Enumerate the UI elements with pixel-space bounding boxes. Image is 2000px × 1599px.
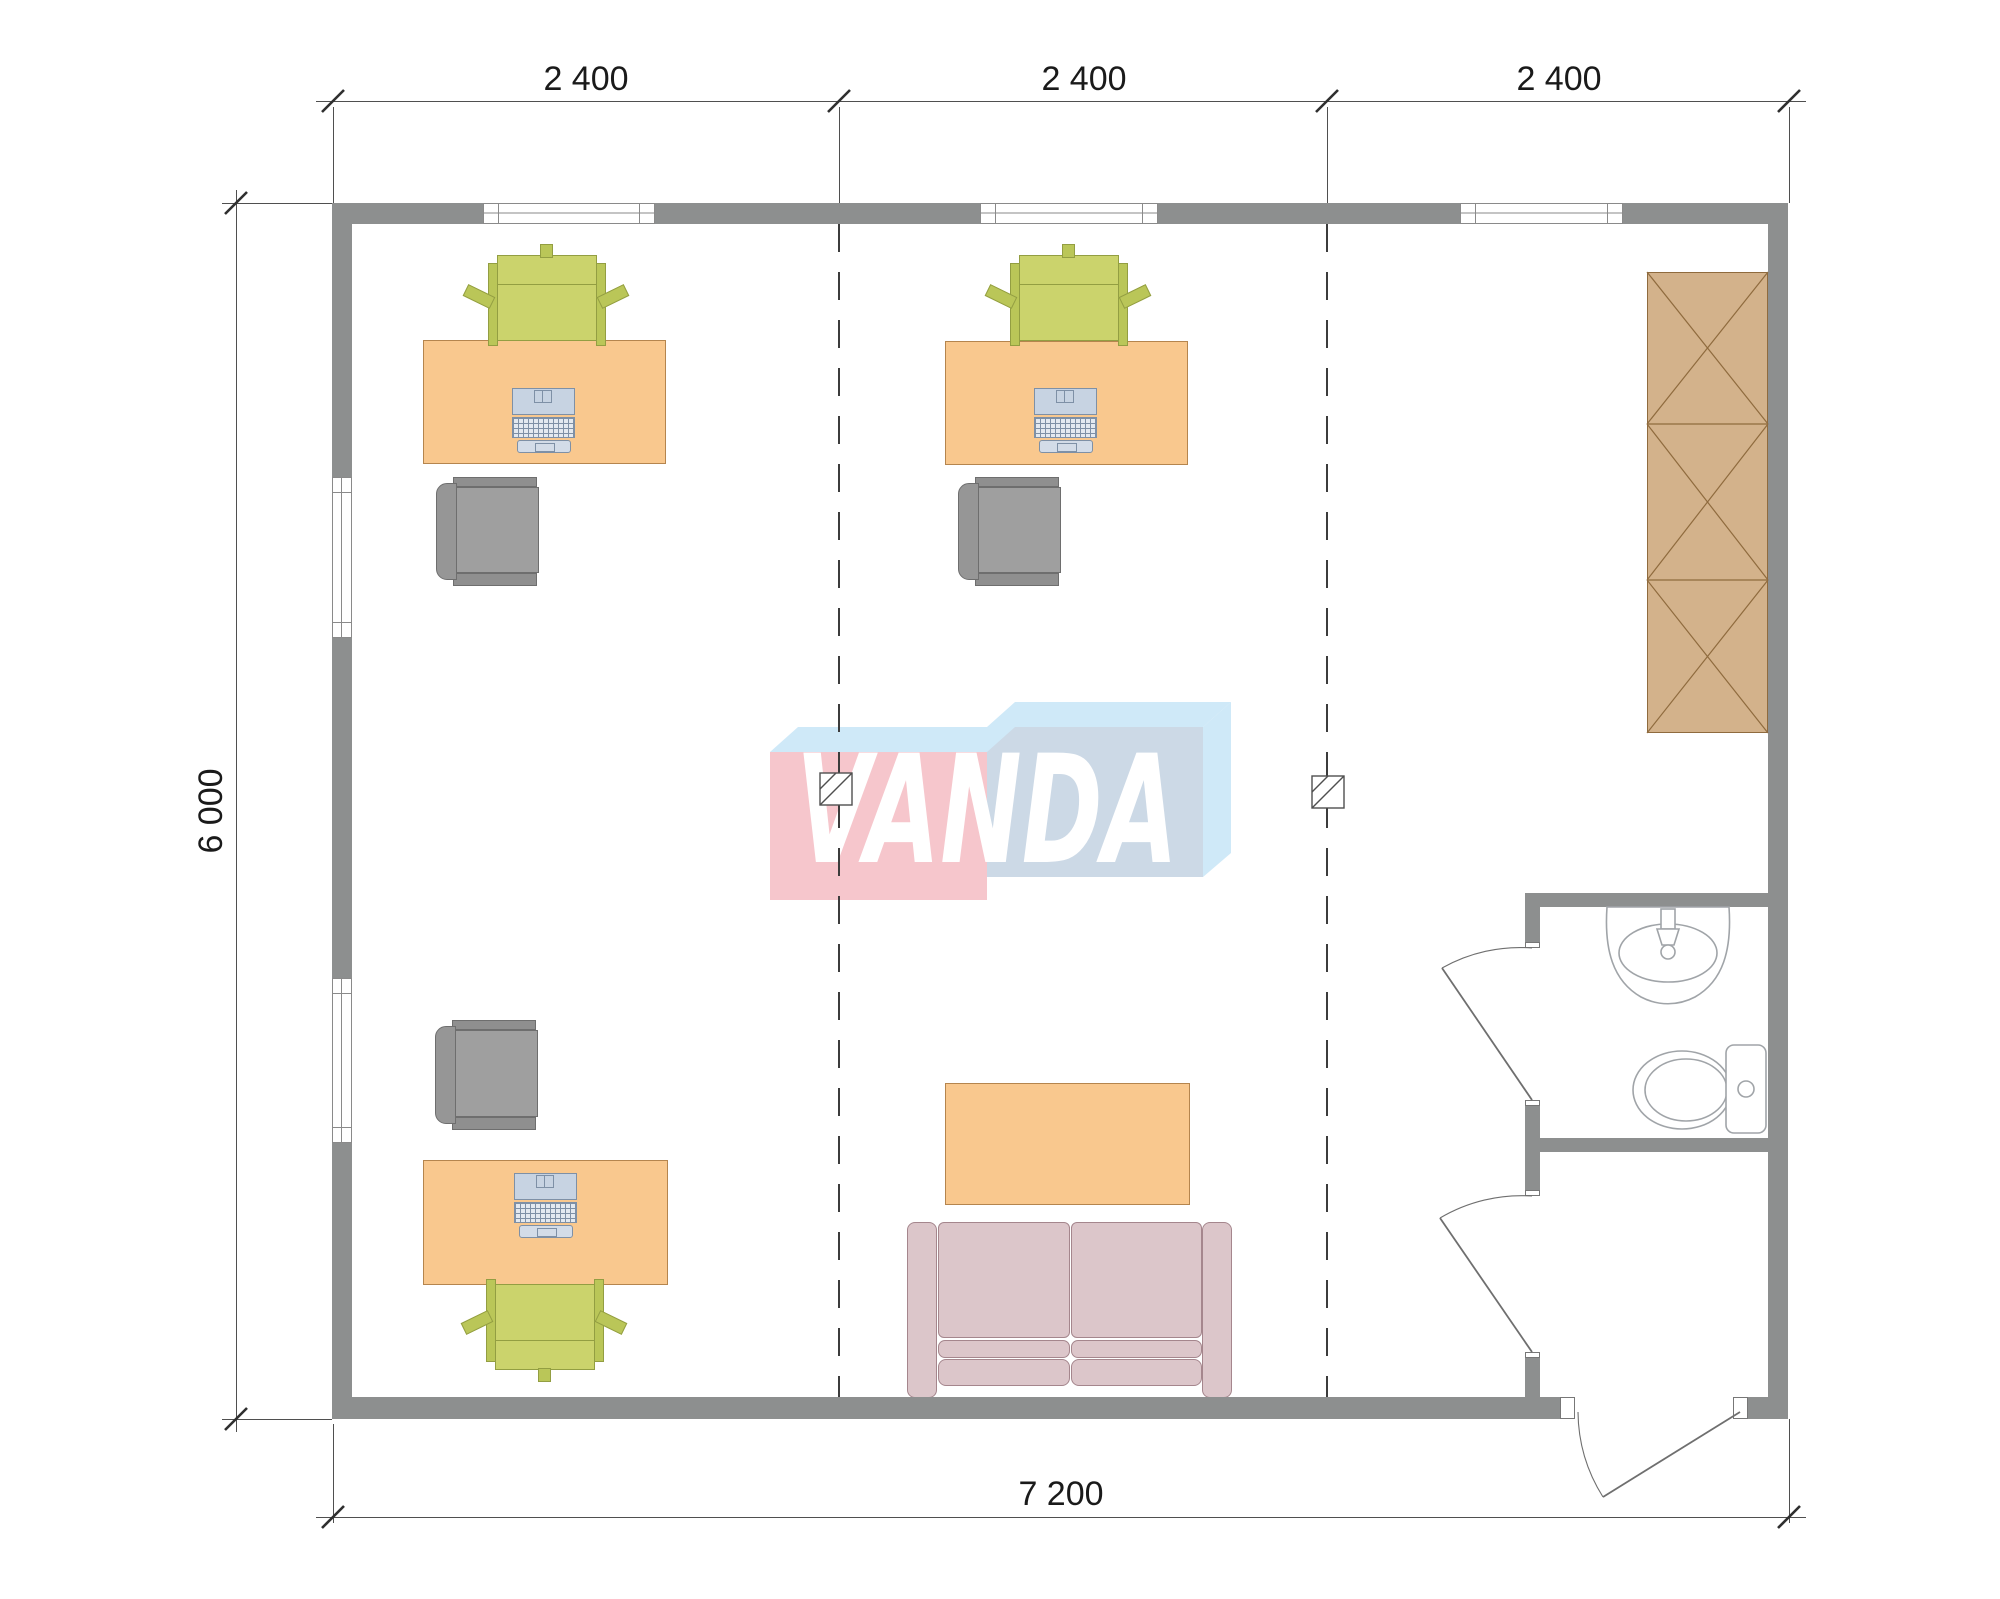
door-swing-vestibule (1440, 1196, 1532, 1352)
plan-overlay (0, 0, 2000, 1599)
floor-plan: VANDA 2 400 2 400 2 400 6 000 7 200 (0, 0, 2000, 1599)
dimension-ticks (225, 90, 1800, 1528)
hatch-symbol-2 (1312, 776, 1344, 808)
cabinet-x-panels (1647, 272, 1768, 733)
sink-icon (1606, 907, 1729, 1004)
hatch-symbol-1 (820, 773, 852, 805)
toilet-icon (1633, 1045, 1766, 1133)
door-swing-entry (1578, 1412, 1740, 1497)
door-swing-wc (1442, 948, 1532, 1100)
